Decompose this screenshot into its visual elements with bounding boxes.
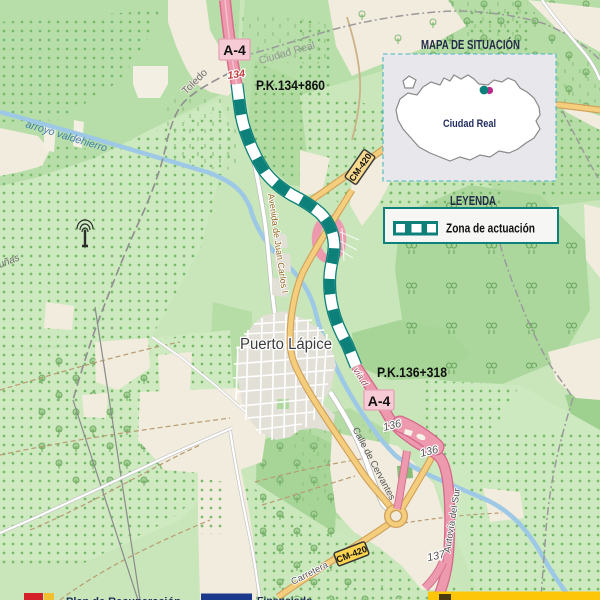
svg-text:MAPA DE SITUACIÓN: MAPA DE SITUACIÓN bbox=[421, 37, 520, 52]
svg-text:Financiado: Financiado bbox=[257, 595, 312, 600]
svg-text:A-4: A-4 bbox=[368, 393, 391, 409]
svg-text:P.K.136+318: P.K.136+318 bbox=[377, 364, 447, 380]
svg-text:P.K.134+860: P.K.134+860 bbox=[256, 77, 325, 93]
svg-text:A-4: A-4 bbox=[223, 42, 246, 58]
svg-text:LEYENDA: LEYENDA bbox=[450, 193, 496, 208]
svg-text:Puerto Lápice: Puerto Lápice bbox=[240, 336, 332, 353]
svg-text:Plan de Recuperación,: Plan de Recuperación, bbox=[66, 596, 184, 600]
svg-text:Ciudad Real: Ciudad Real bbox=[443, 118, 496, 130]
svg-text:Zona de actuación: Zona de actuación bbox=[446, 222, 535, 236]
svg-text:134: 134 bbox=[227, 68, 246, 82]
